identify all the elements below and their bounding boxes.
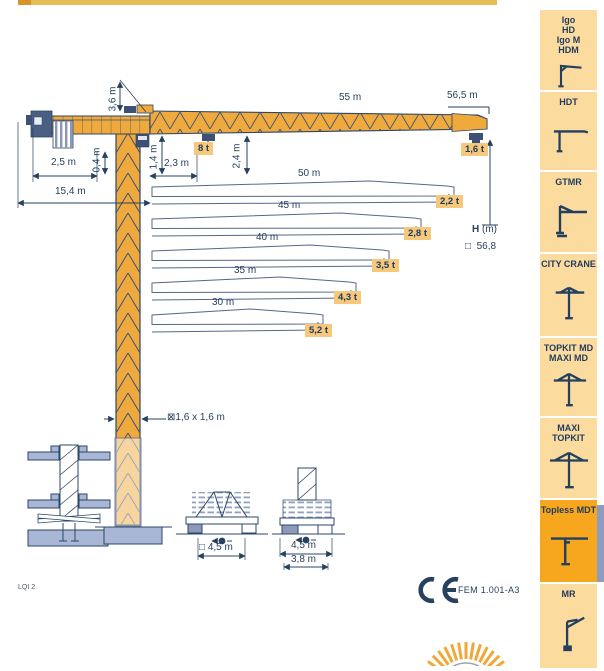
sidebar-item-mr[interactable]: MR bbox=[540, 584, 597, 668]
dim-slew-offset: 0,4 m bbox=[92, 139, 103, 173]
base-static-dim-bottom: 3,8 m bbox=[291, 554, 316, 565]
sidebar-item-hdt[interactable]: HDT bbox=[540, 92, 597, 170]
jib-45m-load-badge: 2,8 t bbox=[404, 227, 431, 240]
sidebar-item-label: IgoHDIgo MHDM bbox=[557, 15, 581, 55]
sidebar-item-label: HDT bbox=[559, 97, 578, 107]
jib-30m-label: 30 m bbox=[212, 297, 234, 308]
dim-counterweight: 2,5 m bbox=[51, 157, 76, 168]
jib-35m-load-badge: 4,3 t bbox=[334, 291, 361, 304]
sidebar-item-label: CITY CRANE bbox=[541, 259, 596, 269]
dim-min-radius: 2,3 m bbox=[164, 158, 189, 169]
gtmr-crane-icon bbox=[547, 187, 591, 252]
dim-head-height: 3,6 m bbox=[108, 78, 119, 112]
city-crane-icon bbox=[548, 269, 590, 336]
dim-hook-height: 2,4 m bbox=[232, 135, 243, 169]
igo-crane-icon bbox=[549, 55, 589, 90]
sidebar-item-label: TOPKIT MDMAXI MD bbox=[544, 343, 593, 363]
jib-30m-load-badge: 5,2 t bbox=[305, 324, 332, 337]
dim-counterjib-radius: 15,4 m bbox=[55, 186, 86, 197]
crane-diagram bbox=[0, 0, 604, 671]
sidebar-item-label: MR bbox=[562, 589, 576, 599]
sidebar-item-gtmr[interactable]: GTMR bbox=[540, 172, 597, 252]
jib-50m-label: 50 m bbox=[298, 168, 320, 179]
active-section-tab[interactable] bbox=[597, 505, 604, 582]
max-load-badge: 8 t bbox=[194, 142, 213, 155]
mr-crane-icon bbox=[548, 599, 590, 668]
topkit-crane-icon bbox=[548, 363, 590, 416]
tip-radius-label: 56,5 m bbox=[447, 90, 478, 101]
height-axis-label: H (m) bbox=[472, 224, 497, 235]
jib-35m-label: 35 m bbox=[234, 265, 256, 276]
height-value: □ 56,8 bbox=[465, 241, 496, 252]
topless-crane-icon bbox=[547, 515, 591, 582]
sidebar-item-maxi-topkit[interactable]: MAXI TOPKIT bbox=[540, 418, 597, 498]
tip-load-badge: 1,6 t bbox=[461, 143, 488, 156]
hdt-crane-icon bbox=[547, 107, 591, 170]
base-static-dim-top: 4,5 m bbox=[291, 540, 316, 551]
sidebar-item-topless-mdt[interactable]: Topless MDT bbox=[540, 500, 597, 582]
jib-50m-load-badge: 2,2 t bbox=[436, 195, 463, 208]
sidebar-item-city-crane[interactable]: CITY CRANE bbox=[540, 254, 597, 336]
sidebar-item-label: Topless MDT bbox=[541, 505, 596, 515]
fem-standard-label: FEM 1.001-A3 bbox=[458, 585, 520, 595]
sidebar-item-topkit-md[interactable]: TOPKIT MDMAXI MD bbox=[540, 338, 597, 416]
base-cross-dim: □ 4,5 m bbox=[199, 542, 233, 553]
jib-45m-label: 45 m bbox=[278, 200, 300, 211]
sidebar-item-label: GTMR bbox=[555, 177, 582, 187]
crane-range-sidebar: IgoHDIgo MHDMHDTGTMRCITY CRANETOPKIT MDM… bbox=[540, 10, 597, 670]
jib-40m-label: 40 m bbox=[256, 232, 278, 243]
jib-length-label: 55 m bbox=[339, 92, 361, 103]
jib-40m-load-badge: 3,5 t bbox=[372, 259, 399, 272]
dim-mast-top: 1,4 m bbox=[149, 136, 160, 170]
maxi-topkit-crane-icon bbox=[546, 443, 592, 498]
mast-section-label: ⊠1,6 x 1,6 m bbox=[167, 412, 225, 423]
sidebar-item-igo[interactable]: IgoHDIgo MHDM bbox=[540, 10, 597, 90]
document-code: LQI 2 bbox=[18, 584, 35, 591]
sidebar-item-label: MAXI TOPKIT bbox=[540, 423, 597, 443]
